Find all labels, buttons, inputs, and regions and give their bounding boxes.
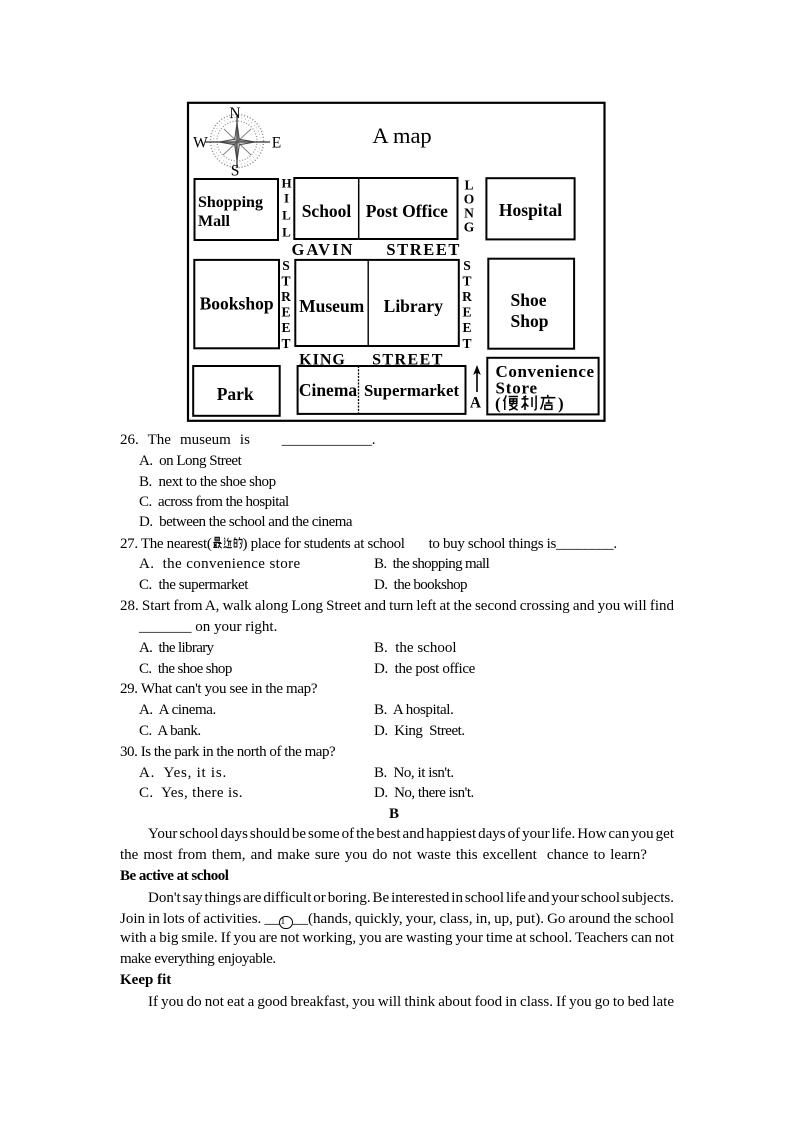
svg-text:O: O [464, 192, 475, 207]
svg-text:STREET: STREET [386, 240, 461, 259]
svg-text:GAVIN: GAVIN [292, 240, 355, 259]
svg-text:Mall: Mall [198, 213, 231, 230]
svg-text:E: E [462, 305, 471, 320]
svg-text:H: H [281, 176, 291, 191]
svg-text:Cinema: Cinema [299, 380, 358, 400]
svg-text:Shoe: Shoe [511, 290, 547, 310]
svg-text:A map: A map [372, 123, 431, 148]
svg-text:L: L [282, 208, 291, 223]
svg-text:(: ( [495, 394, 501, 413]
svg-text:S: S [231, 163, 240, 180]
svg-text:S: S [282, 258, 290, 273]
svg-text:R: R [281, 289, 291, 304]
svg-text:Post Office: Post Office [366, 201, 448, 221]
svg-text:S: S [463, 258, 471, 273]
svg-text:E: E [462, 320, 471, 335]
svg-text:E: E [281, 305, 290, 320]
svg-text:N: N [229, 105, 240, 122]
svg-text:Shopping: Shopping [198, 194, 263, 211]
svg-text:T: T [462, 274, 471, 289]
svg-text:L: L [282, 225, 291, 240]
svg-text:E: E [281, 320, 290, 335]
svg-text:T: T [281, 274, 290, 289]
svg-text:T: T [462, 336, 471, 351]
svg-text:): ) [558, 394, 564, 413]
svg-text:Supermarket: Supermarket [364, 381, 459, 400]
svg-text:Park: Park [217, 384, 254, 404]
svg-text:T: T [281, 336, 290, 351]
svg-text:Store: Store [496, 379, 538, 398]
svg-text:L: L [464, 178, 473, 193]
svg-text:W: W [193, 135, 208, 152]
svg-text:Library: Library [384, 296, 444, 316]
svg-text:School: School [302, 201, 352, 221]
svg-text:R: R [462, 289, 472, 304]
svg-text:Shop: Shop [511, 311, 549, 331]
svg-text:Bookshop: Bookshop [200, 294, 274, 314]
svg-text:G: G [464, 220, 475, 235]
svg-text:Hospital: Hospital [499, 200, 562, 220]
svg-text:N: N [464, 206, 474, 221]
svg-text:A: A [470, 395, 482, 412]
svg-text:I: I [284, 191, 289, 206]
svg-text:E: E [272, 135, 281, 152]
svg-text:Museum: Museum [299, 296, 365, 316]
